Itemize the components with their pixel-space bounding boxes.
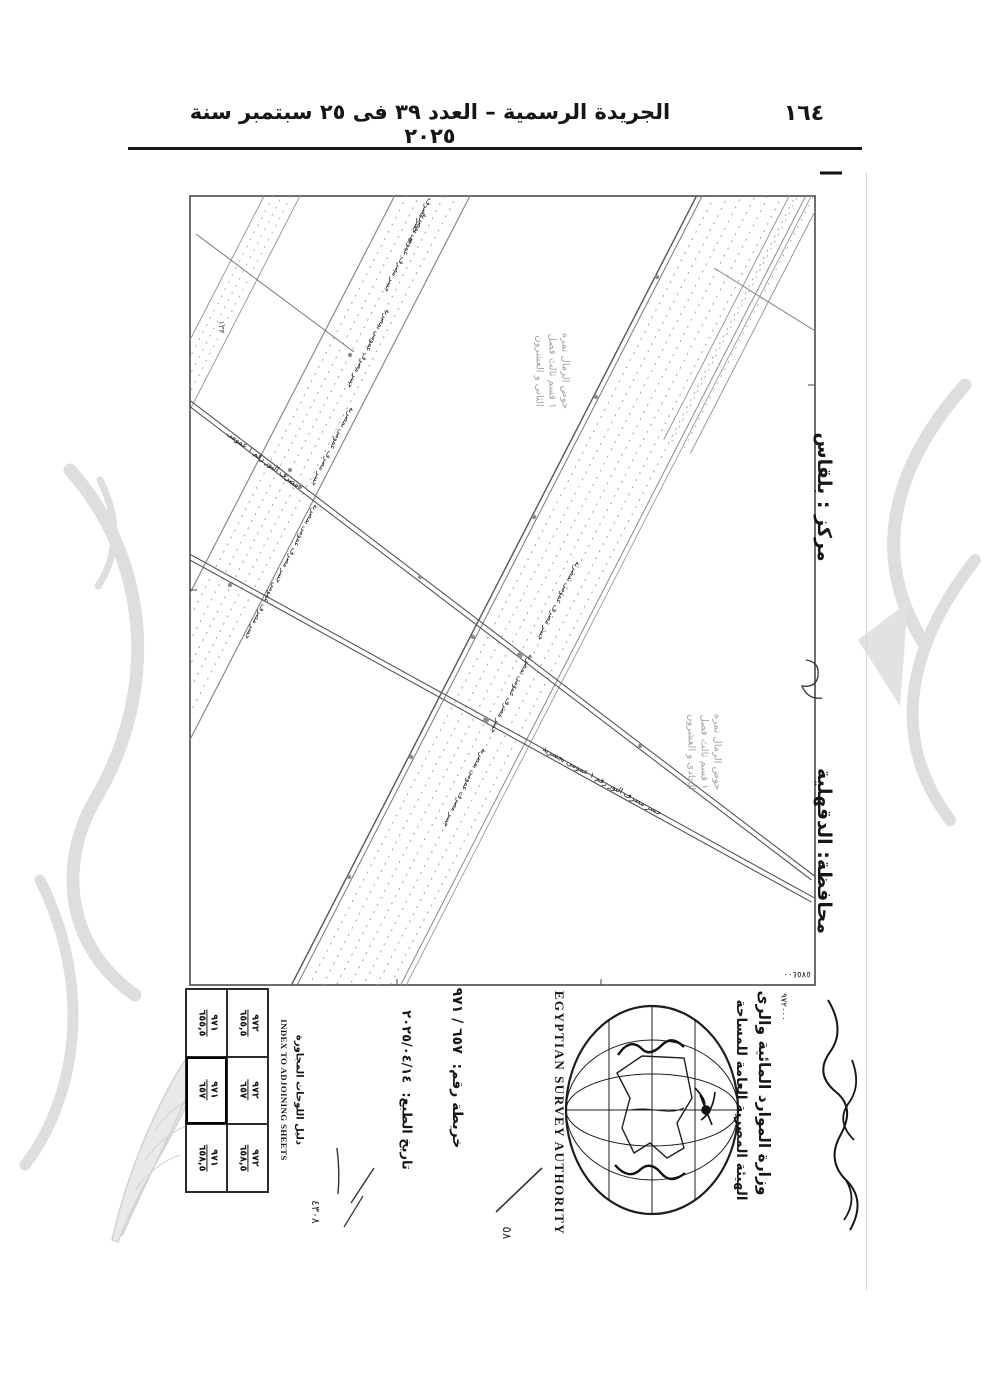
page-number: ١٦٤ bbox=[768, 101, 840, 126]
corner-coordinate-horizontal: ٥٧٥٤٠٠ bbox=[783, 969, 810, 979]
egyptian-survey-authority-globe-logo bbox=[566, 1006, 738, 1214]
drain-band-1 bbox=[150, 168, 508, 771]
canal-label: جسر مصرف عمومى بمصرية bbox=[441, 747, 489, 829]
gazette-header-title: الجريدة الرسمية – العدد ٣٩ فى ٢٥ سبتمبر … bbox=[170, 100, 690, 148]
handwritten-number-2: ٤٣٠٨ bbox=[309, 1200, 322, 1224]
logo-winged-emblem bbox=[695, 1088, 715, 1125]
handwritten-number-1: ٥٨ bbox=[500, 1227, 514, 1240]
map-number: خريطة رقم: ٦٥٧ / ٩٧١ bbox=[449, 988, 465, 1149]
index-cell-current-sheet: ٩٧١٦٥٧ bbox=[186, 1057, 227, 1125]
map-frame bbox=[190, 196, 815, 985]
hod-label-2: حوض الرمال نمره ١ قسم ثالث فصل الحادى و … bbox=[685, 714, 724, 790]
authority-name-arabic: الهيئة المصرية العامة للمساحة bbox=[733, 1000, 749, 1201]
canal-label: جسر مصرف عمومى bbox=[243, 581, 280, 641]
corner-road-line bbox=[196, 234, 354, 352]
authority-name-english: EGYPTIAN SURVEY AUTHORITY bbox=[551, 991, 567, 1236]
index-cell: ٩٧١٦٥٨,٥ bbox=[186, 1124, 227, 1192]
hod-label-1: حوض الرمال نمره ١ قسم ثالث فصل الثانى و … bbox=[533, 333, 572, 409]
index-title-english: INDEX TO ADJOINING SHEETS bbox=[279, 1019, 289, 1160]
canal-label: جسر مصرف عمومى بمصرية bbox=[273, 503, 321, 585]
adjoining-sheets-index-table: ٩٧١٦٥٥,٥ ٩٧٢٦٥٥,٥ ٩٧١٦٥٧ ٩٧٢٦٥٧ ٩٧١٦٥٨,٥… bbox=[185, 988, 269, 1193]
index-cell: ٩٧٢٦٥٥,٥ bbox=[227, 989, 268, 1057]
cross-road-3 bbox=[714, 268, 820, 334]
header-rule bbox=[128, 147, 862, 150]
egypt-outline bbox=[617, 1056, 692, 1158]
ministry-name-arabic: وزارة الموارد المائية والرى bbox=[755, 990, 773, 1195]
canal-label: جسر مصرف عمومى بمصرية bbox=[488, 653, 536, 735]
markaz-label: مركز : بلقاس bbox=[813, 432, 835, 561]
nour-drain-label: مصرف النور رقم ١ عمومى bbox=[225, 429, 301, 490]
index-cell: ٩٧٢٦٥٨,٥ bbox=[227, 1124, 268, 1192]
edge-number: ١٣٣ bbox=[217, 321, 226, 335]
index-cell: ٩٧٢٦٥٧ bbox=[227, 1057, 268, 1125]
gazette-page: الجريدة الرسمية – العدد ٣٩ فى ٢٥ سبتمبر … bbox=[0, 0, 991, 1400]
governorate-label: محافظة: الدقهلية bbox=[813, 768, 835, 934]
handwritten-signature bbox=[823, 1000, 857, 1230]
drain-band-1b bbox=[150, 168, 323, 432]
print-date: تاريخ الطبع: ٢٠٢٥/٠٤/١٤ bbox=[399, 1010, 414, 1169]
corner-coordinate-vertical: ٩٧٢٠٠٠ bbox=[778, 993, 788, 1020]
index-title-arabic: دليل اللوحات المجاورة bbox=[294, 1035, 305, 1145]
index-cell: ٩٧١٦٥٥,٥ bbox=[186, 989, 227, 1057]
bridge-road-label: جسر مصرف النور رقم ١ عمومى بجسرية bbox=[541, 744, 663, 817]
